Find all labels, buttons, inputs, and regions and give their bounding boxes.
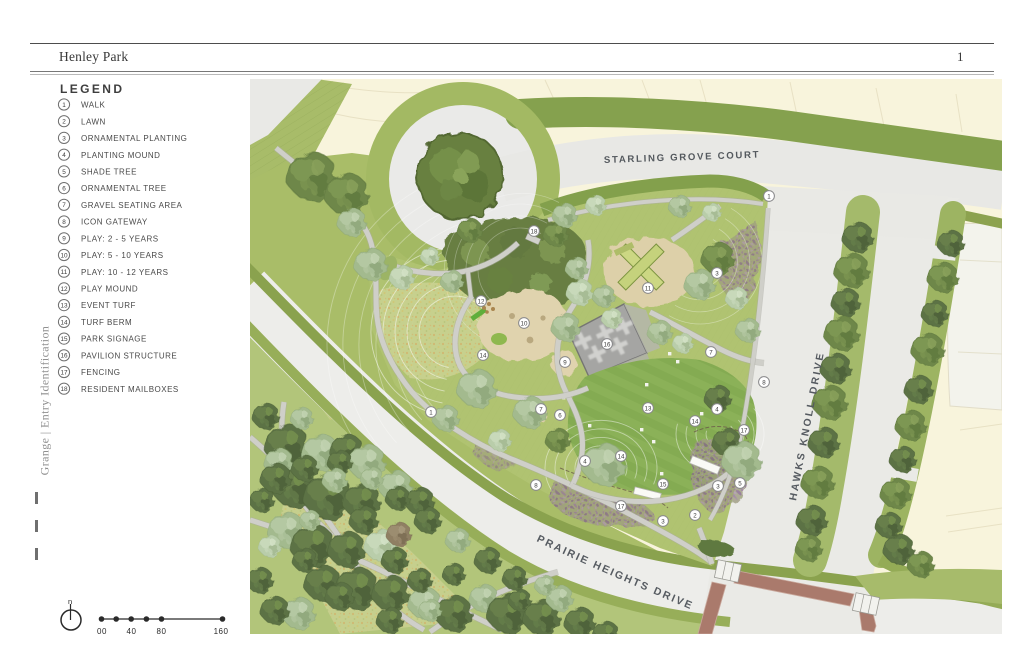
- svg-text:7: 7: [539, 406, 543, 413]
- svg-text:EVENT TURF: EVENT TURF: [81, 301, 136, 310]
- svg-text:12: 12: [478, 298, 485, 305]
- svg-text:17: 17: [741, 427, 748, 434]
- svg-text:ORNAMENTAL TREE: ORNAMENTAL TREE: [81, 184, 167, 193]
- svg-text:ICON GATEWAY: ICON GATEWAY: [81, 218, 148, 227]
- svg-text:PAVILION STRUCTURE: PAVILION STRUCTURE: [81, 351, 177, 360]
- svg-text:80: 80: [157, 627, 167, 636]
- svg-text:1: 1: [429, 409, 433, 416]
- svg-text:160: 160: [214, 627, 229, 636]
- svg-text:PLAY: 2 - 5 YEARS: PLAY: 2 - 5 YEARS: [81, 234, 159, 243]
- svg-text:00: 00: [97, 627, 107, 636]
- svg-text:17: 17: [618, 503, 625, 510]
- svg-text:3: 3: [661, 518, 665, 525]
- svg-text:13: 13: [645, 405, 652, 412]
- svg-text:3: 3: [62, 135, 66, 142]
- svg-text:9: 9: [62, 236, 66, 243]
- svg-text:SHADE TREE: SHADE TREE: [81, 168, 137, 177]
- svg-text:PLANTING MOUND: PLANTING MOUND: [81, 151, 160, 160]
- svg-text:4: 4: [715, 406, 719, 413]
- svg-text:13: 13: [60, 303, 68, 310]
- svg-text:6: 6: [558, 412, 562, 419]
- svg-text:ORNAMENTAL PLANTING: ORNAMENTAL PLANTING: [81, 134, 187, 143]
- svg-text:14: 14: [692, 418, 699, 425]
- svg-text:5: 5: [62, 169, 66, 176]
- svg-text:16: 16: [604, 341, 611, 348]
- svg-text:PLAY MOUND: PLAY MOUND: [81, 285, 138, 294]
- svg-text:RESIDENT MAILBOXES: RESIDENT MAILBOXES: [81, 385, 179, 394]
- svg-text:TURF BERM: TURF BERM: [81, 318, 132, 327]
- svg-text:WALK: WALK: [81, 101, 106, 110]
- svg-text:3: 3: [715, 270, 719, 277]
- svg-text:FENCING: FENCING: [81, 368, 121, 377]
- svg-text:18: 18: [531, 228, 538, 235]
- svg-text:6: 6: [62, 186, 66, 193]
- svg-text:8: 8: [62, 219, 66, 226]
- svg-text:7: 7: [709, 349, 713, 356]
- svg-text:8: 8: [762, 379, 766, 386]
- svg-text:10: 10: [521, 320, 528, 327]
- svg-text:n: n: [68, 597, 72, 606]
- svg-text:15: 15: [660, 481, 667, 488]
- svg-text:16: 16: [60, 353, 68, 360]
- svg-text:PARK SIGNAGE: PARK SIGNAGE: [81, 335, 147, 344]
- svg-text:10: 10: [60, 252, 68, 259]
- svg-text:5: 5: [738, 480, 742, 487]
- svg-text:1: 1: [767, 193, 771, 200]
- svg-text:8: 8: [534, 482, 538, 489]
- svg-text:18: 18: [60, 386, 68, 393]
- svg-text:GRAVEL SEATING AREA: GRAVEL SEATING AREA: [81, 201, 183, 210]
- svg-text:14: 14: [480, 352, 487, 359]
- svg-text:1: 1: [62, 102, 66, 109]
- svg-text:14: 14: [618, 453, 625, 460]
- svg-text:2: 2: [693, 512, 697, 519]
- svg-text:PLAY: 10 - 12 YEARS: PLAY: 10 - 12 YEARS: [81, 268, 168, 277]
- svg-text:11: 11: [61, 269, 68, 276]
- svg-text:4: 4: [583, 458, 587, 465]
- svg-text:3: 3: [716, 483, 720, 490]
- svg-text:9: 9: [563, 359, 567, 366]
- svg-text:12: 12: [60, 286, 68, 293]
- svg-text:15: 15: [60, 336, 68, 343]
- svg-text:PLAY: 5 - 10 YEARS: PLAY: 5 - 10 YEARS: [81, 251, 164, 260]
- svg-text:LAWN: LAWN: [81, 117, 106, 126]
- svg-text:2: 2: [62, 119, 66, 126]
- svg-text:11: 11: [645, 285, 652, 292]
- svg-text:4: 4: [62, 152, 66, 159]
- svg-text:40: 40: [127, 627, 137, 636]
- svg-text:7: 7: [62, 202, 66, 209]
- svg-text:14: 14: [60, 319, 68, 326]
- svg-text:17: 17: [60, 369, 68, 376]
